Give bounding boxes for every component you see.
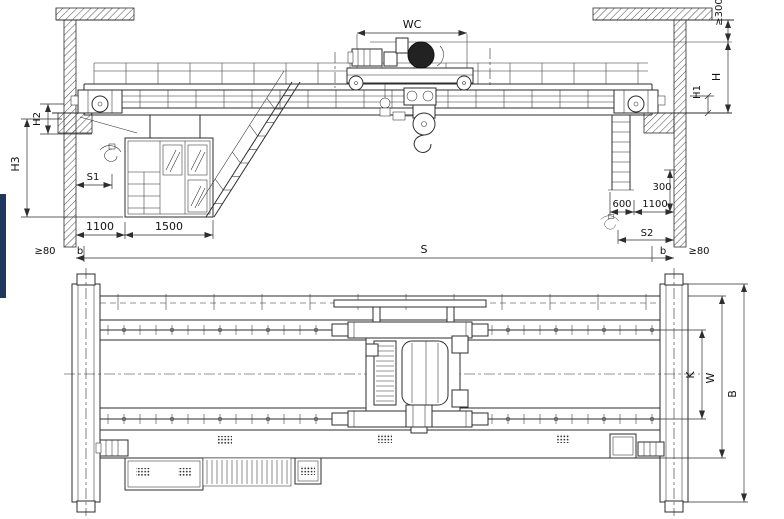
drawing-canvas: WC ≥300 H H1 H2 H3 S1 — [0, 0, 784, 519]
crane-technical-drawing: WC ≥300 H H1 H2 H3 S1 — [0, 0, 784, 519]
hatch-mark — [218, 436, 232, 445]
dim-span-label: S — [421, 243, 428, 256]
dim-1500-label: 1500 — [155, 220, 183, 233]
plan-view: K W B — [64, 268, 748, 516]
hook-icon — [414, 135, 431, 152]
rail-corbel-left — [58, 113, 92, 133]
bridge-girder — [71, 84, 665, 115]
travel-motor-right — [638, 442, 664, 456]
dim-h1-label: H1 — [692, 85, 703, 99]
dim-300-label: 300 — [652, 182, 671, 193]
hatch-mark — [136, 468, 150, 477]
buffer-left — [71, 96, 78, 105]
hatch-mark — [378, 434, 392, 443]
rail-corbel-right — [644, 113, 674, 133]
hook-approach-icon-right — [601, 214, 619, 229]
wall-column-right — [674, 20, 686, 247]
gearbox-plan — [452, 390, 468, 407]
screen-edge-bar — [0, 194, 6, 298]
limit-weight-sheave — [380, 98, 390, 108]
travel-motor-left — [100, 440, 128, 456]
wall-column-left — [64, 20, 76, 247]
dim-b-right-label: b — [660, 246, 666, 257]
dim-b-label: B — [726, 390, 739, 398]
trolley-wheel — [349, 76, 363, 90]
ladder-rungs — [612, 122, 630, 182]
trolley-frame — [347, 68, 473, 83]
dim-top-clearance-label: ≥300 — [714, 0, 725, 26]
dim-1100-right-label: 1100 — [642, 199, 667, 210]
dim-k-label: K — [684, 371, 697, 379]
dim-600-label: 600 — [612, 199, 631, 210]
cab-body — [125, 138, 213, 217]
dim-1100-left-label: 1100 — [86, 220, 114, 233]
trolley-wheel — [457, 76, 471, 90]
brake-unit — [396, 38, 408, 53]
hoist-trolley-elevation — [335, 34, 732, 90]
sheave-block-plan — [406, 405, 432, 427]
dim-b-left-label: b — [77, 246, 83, 257]
hoist-motor — [352, 49, 382, 66]
hatch-mark — [301, 466, 315, 475]
rope-drum-end — [408, 42, 434, 68]
hatch-mark — [178, 468, 192, 477]
access-ladder — [608, 115, 634, 190]
operator-cab-elevation — [125, 115, 213, 217]
dim-h3-label: H3 — [9, 156, 22, 171]
dim-w-label: W — [704, 372, 717, 383]
elevation-view: WC ≥300 H H1 H2 H3 S1 — [9, 0, 734, 262]
hook-pulley — [413, 113, 435, 135]
end-carriage-right — [660, 268, 688, 516]
hook-assembly — [380, 83, 436, 152]
walkway-equipment — [96, 434, 664, 490]
end-carriage-left — [72, 268, 100, 516]
dim-s1-label: S1 — [87, 172, 100, 183]
hoist-motor-plan — [402, 341, 448, 405]
electrical-cabinet — [610, 434, 636, 458]
ceiling-right — [593, 8, 712, 20]
dim-clear80-right-label: ≥80 — [688, 246, 709, 257]
hook-approach-icon-left — [100, 144, 121, 161]
gearbox — [384, 52, 397, 66]
dim-s2-label: S2 — [641, 228, 654, 239]
dimensions-elevation: WC ≥300 H H1 H2 H3 S1 — [9, 0, 728, 262]
hatch-mark — [556, 434, 570, 443]
gearbox-plan — [452, 336, 468, 353]
trolley-crossbar — [334, 300, 486, 307]
buffer-right — [658, 96, 665, 105]
dim-clear80-left-label: ≥80 — [34, 246, 55, 257]
dim-wc-label: WC — [403, 18, 422, 31]
crane-wheel-right — [628, 96, 644, 112]
girder-stiffeners — [112, 90, 644, 108]
crane-wheel-left — [92, 96, 108, 112]
stair-steps — [215, 96, 292, 204]
dim-h-label: H — [710, 73, 723, 81]
ceiling-left — [56, 8, 134, 20]
